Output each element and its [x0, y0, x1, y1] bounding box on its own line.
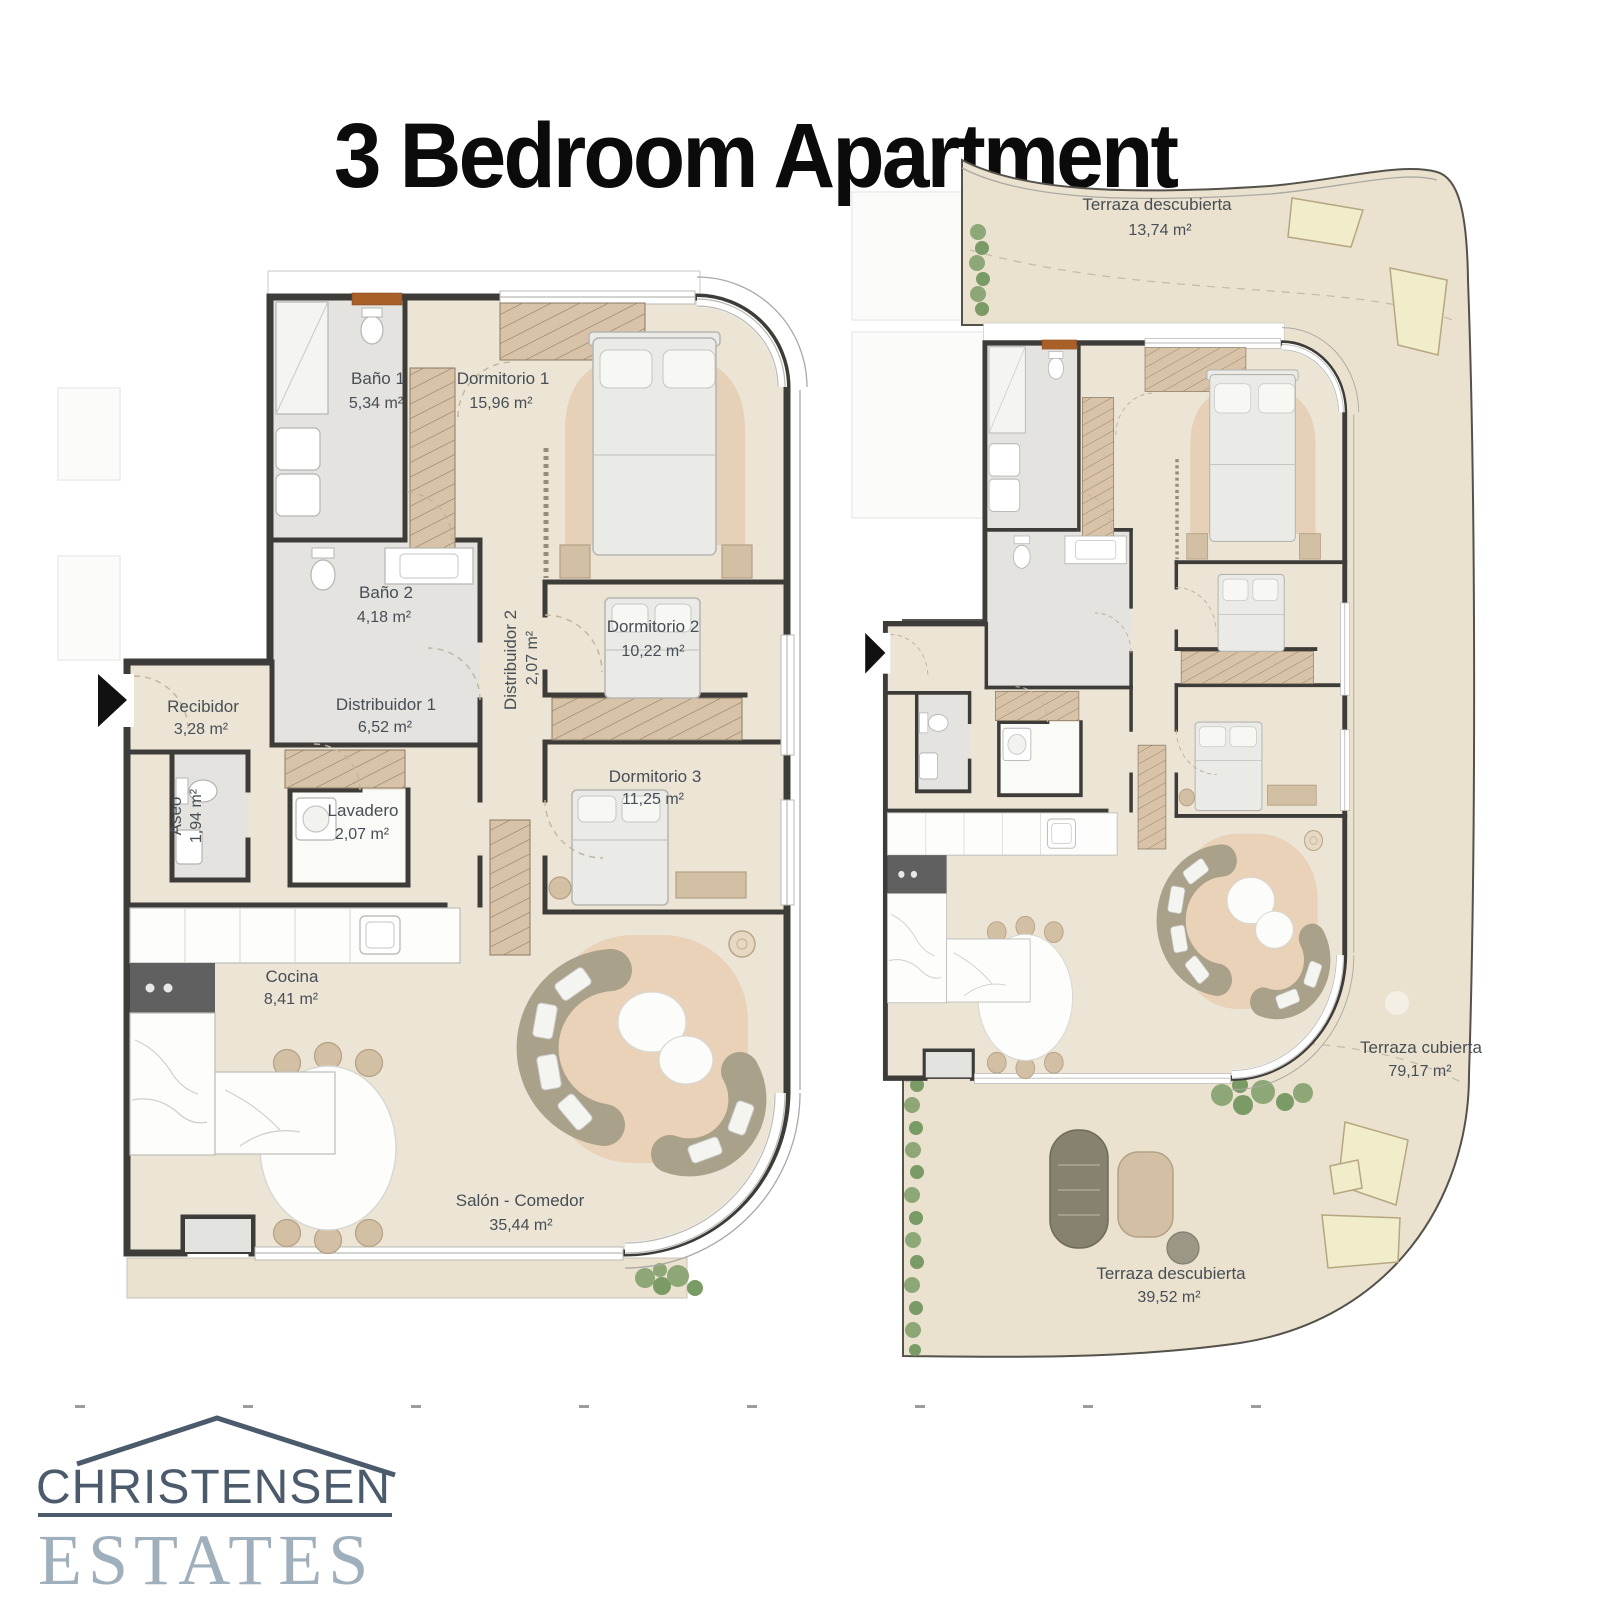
room-area: 5,34 m²: [349, 395, 404, 412]
room-label: Lavadero: [328, 801, 399, 820]
room-label: Aseo: [166, 797, 185, 836]
room-label: Dormitorio 3: [609, 767, 702, 786]
room-area: 8,41 m²: [264, 991, 319, 1008]
balcony-strip: [127, 1258, 687, 1298]
room-area: 15,96 m²: [469, 395, 533, 412]
room-area: 3,28 m²: [174, 721, 229, 738]
brand-logo: CHRISTENSEN ESTATES: [30, 1412, 410, 1602]
room-area: 2,07 m²: [335, 826, 390, 843]
room-area: 10,22 m²: [621, 643, 685, 660]
neighbor-ghost: [58, 388, 120, 480]
cropped-text-remnant: [75, 1405, 1310, 1408]
room-area: 2,07 m²: [524, 630, 541, 685]
floor-plan-right: Terraza descubierta 13,74 m² Terraza cub…: [852, 160, 1482, 1357]
room-area: 1,94 m²: [188, 788, 205, 843]
terrace-area: 13,74 m²: [1128, 222, 1192, 239]
terrace-area: 79,17 m²: [1388, 1063, 1452, 1080]
room-label: Dormitorio 2: [607, 617, 700, 636]
room-area: 4,18 m²: [357, 609, 412, 626]
terrace-spot: [1385, 991, 1409, 1015]
terrace-label: Terraza descubierta: [1096, 1264, 1246, 1283]
room-label: Distribuidor 1: [336, 695, 436, 714]
room-area: 35,44 m²: [489, 1217, 553, 1234]
neighbor-ghost: [58, 556, 120, 660]
room-label: Cocina: [266, 967, 319, 986]
room-label: Baño 2: [359, 583, 413, 602]
terrace-label: Terraza cubierta: [1360, 1038, 1482, 1057]
room-label: Recibidor: [167, 697, 239, 716]
floor-plan-left: Baño 1 5,34 m² Dormitorio 1 15,96 m² Bañ…: [58, 271, 807, 1298]
room-label: Distribuidor 2: [501, 610, 520, 710]
room-label: Dormitorio 1: [457, 369, 550, 388]
room-area: 6,52 m²: [358, 719, 413, 736]
terrace-area: 39,52 m²: [1137, 1289, 1201, 1306]
logo-line2: ESTATES: [38, 1520, 374, 1600]
room-label: Baño 1: [351, 369, 405, 388]
room-area: 11,25 m²: [622, 791, 685, 808]
room-label: Salón - Comedor: [456, 1191, 585, 1210]
neighbor-ghost: [852, 332, 1004, 518]
logo-line1: CHRISTENSEN: [36, 1461, 391, 1514]
terrace-label: Terraza descubierta: [1082, 195, 1232, 214]
floor-plan-canvas: Baño 1 5,34 m² Dormitorio 1 15,96 m² Bañ…: [0, 0, 1600, 1600]
